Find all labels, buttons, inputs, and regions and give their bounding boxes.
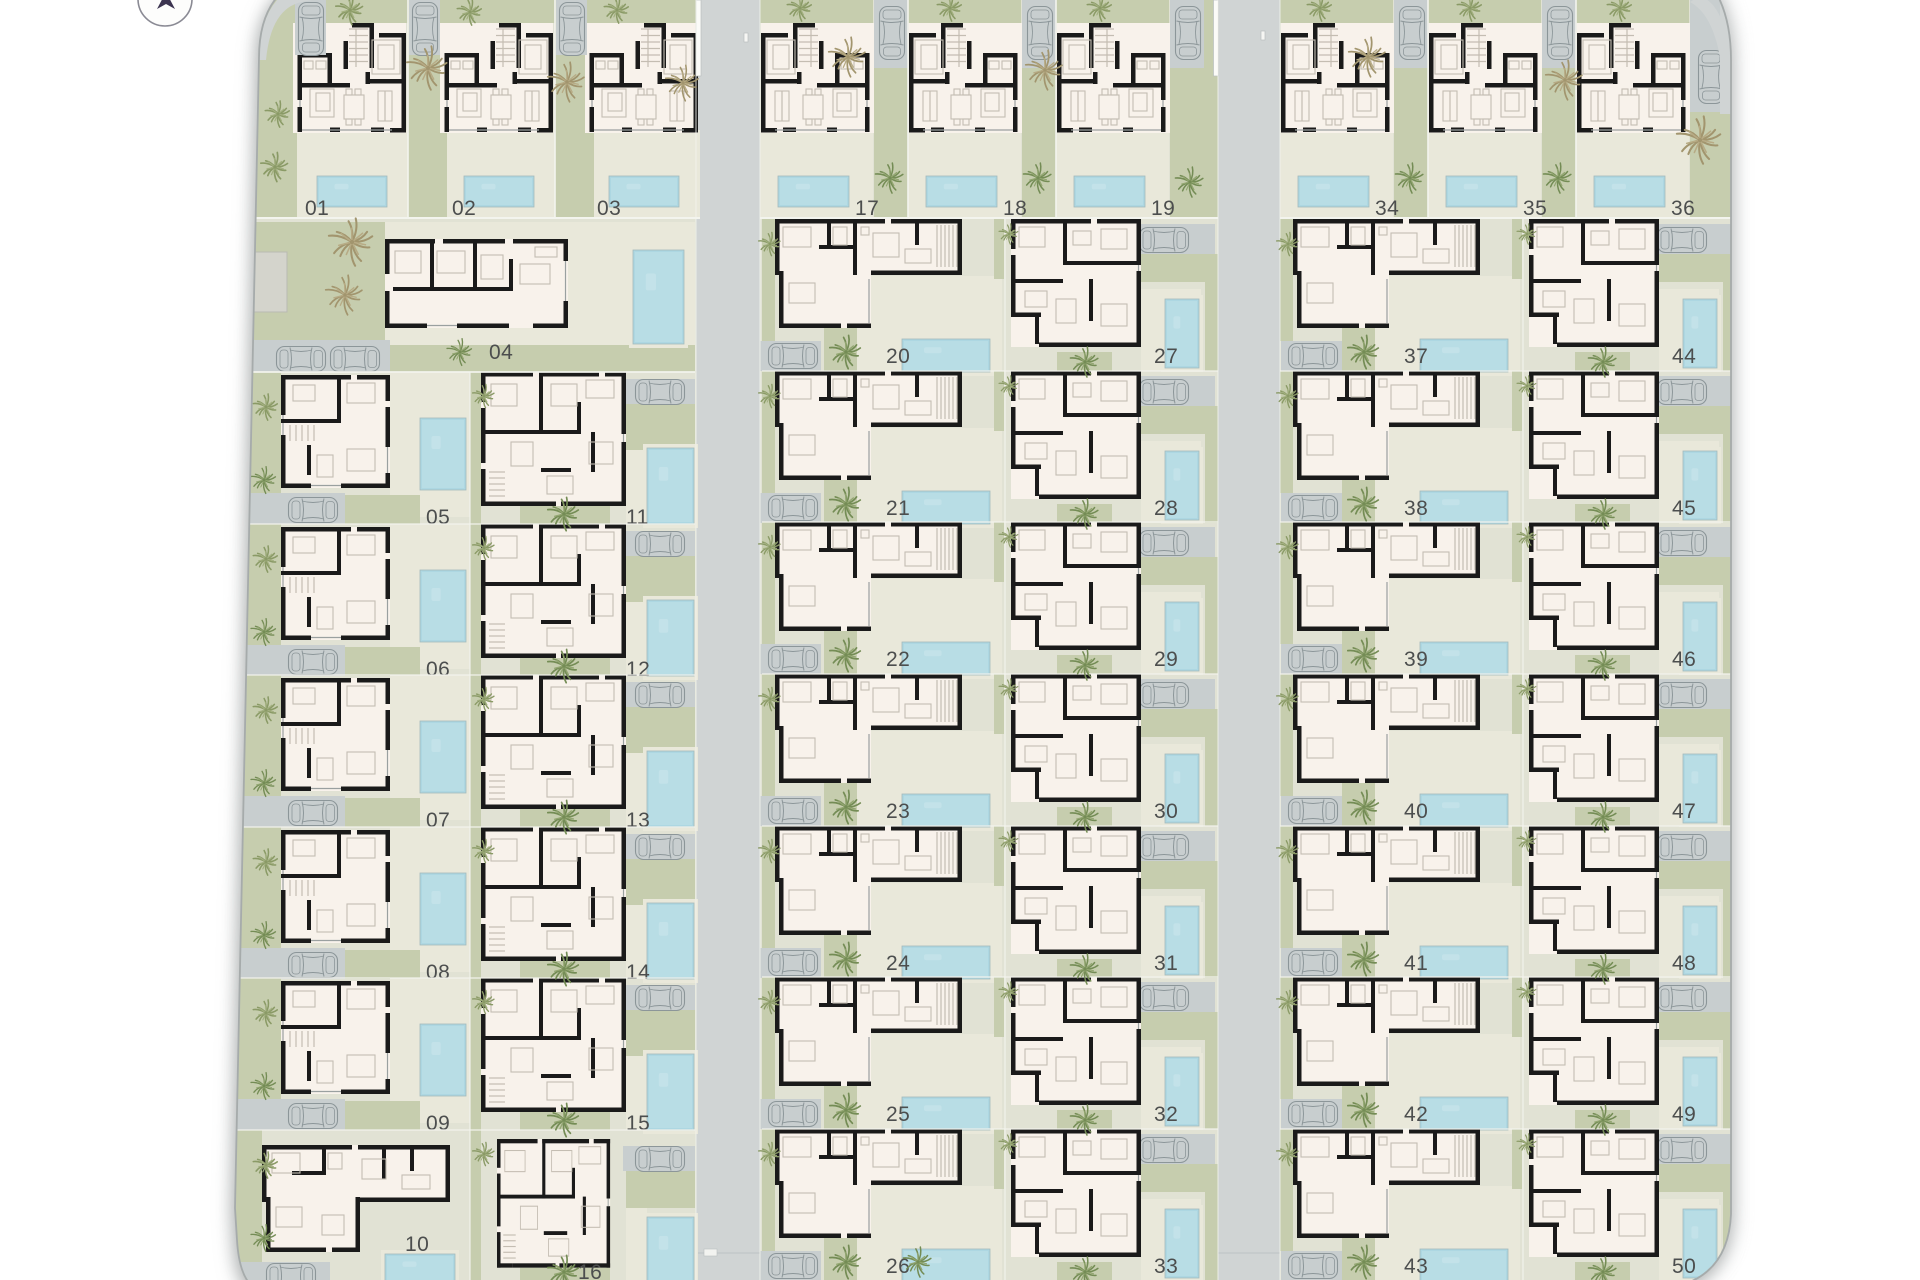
svg-text:28: 28 <box>1154 497 1178 520</box>
svg-text:18: 18 <box>1003 197 1027 220</box>
svg-text:31: 31 <box>1154 952 1178 975</box>
svg-text:04: 04 <box>489 341 513 364</box>
svg-text:32: 32 <box>1154 1103 1178 1126</box>
svg-text:34: 34 <box>1375 197 1399 220</box>
svg-text:09: 09 <box>426 1112 450 1135</box>
svg-text:47: 47 <box>1672 800 1696 823</box>
svg-text:42: 42 <box>1404 1103 1428 1126</box>
svg-text:35: 35 <box>1523 197 1547 220</box>
svg-text:39: 39 <box>1404 648 1428 671</box>
svg-text:20: 20 <box>886 345 910 368</box>
svg-text:33: 33 <box>1154 1255 1178 1278</box>
svg-text:02: 02 <box>452 197 476 220</box>
svg-text:48: 48 <box>1672 952 1696 975</box>
svg-text:03: 03 <box>597 197 621 220</box>
svg-text:16: 16 <box>578 1261 602 1280</box>
svg-text:40: 40 <box>1404 800 1428 823</box>
svg-text:24: 24 <box>886 952 910 975</box>
svg-text:11: 11 <box>626 506 649 529</box>
svg-text:01: 01 <box>305 197 329 220</box>
svg-text:14: 14 <box>626 961 650 984</box>
svg-text:45: 45 <box>1672 497 1696 520</box>
svg-text:19: 19 <box>1151 197 1175 220</box>
svg-text:36: 36 <box>1671 197 1695 220</box>
svg-text:50: 50 <box>1672 1255 1696 1278</box>
svg-text:21: 21 <box>886 497 910 520</box>
svg-text:23: 23 <box>886 800 910 823</box>
svg-text:41: 41 <box>1404 952 1428 975</box>
svg-text:38: 38 <box>1404 497 1428 520</box>
svg-text:44: 44 <box>1672 345 1696 368</box>
svg-text:22: 22 <box>886 648 910 671</box>
svg-text:49: 49 <box>1672 1103 1696 1126</box>
svg-text:30: 30 <box>1154 800 1178 823</box>
svg-text:13: 13 <box>626 809 650 832</box>
svg-text:46: 46 <box>1672 648 1696 671</box>
svg-text:10: 10 <box>405 1233 429 1256</box>
svg-text:17: 17 <box>855 197 879 220</box>
svg-text:27: 27 <box>1154 345 1178 368</box>
svg-text:37: 37 <box>1404 345 1428 368</box>
svg-text:15: 15 <box>626 1112 650 1135</box>
svg-text:12: 12 <box>626 658 650 681</box>
svg-text:25: 25 <box>886 1103 910 1126</box>
svg-text:43: 43 <box>1404 1255 1428 1278</box>
svg-text:29: 29 <box>1154 648 1178 671</box>
